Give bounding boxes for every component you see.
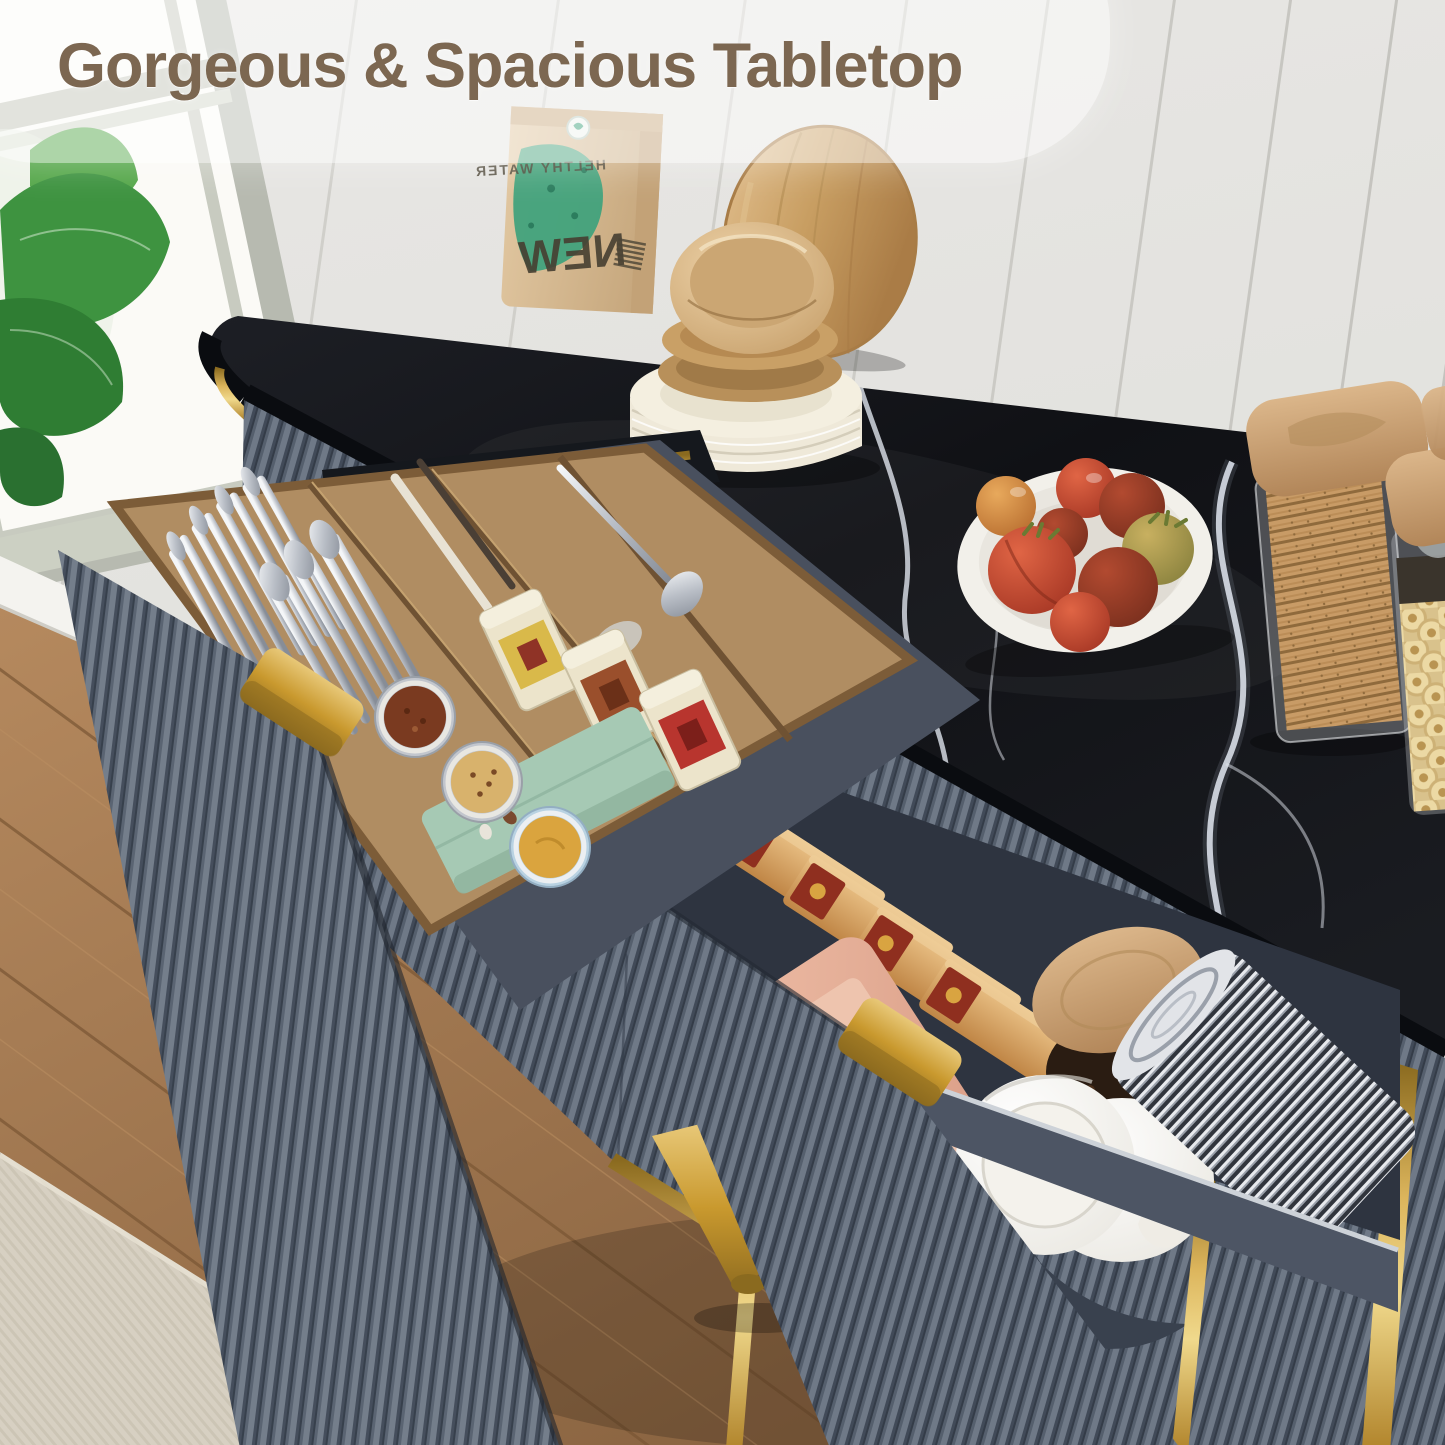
spice-tin <box>375 677 455 757</box>
kraft-bag-title: NEW <box>516 223 628 284</box>
page-title: Gorgeous & Spacious Tabletop <box>57 30 1157 102</box>
scene-canvas: HELTHY WATER NEW <box>0 0 1445 1445</box>
spice-tin <box>442 742 522 822</box>
spice-tin <box>510 807 590 887</box>
product-photo-scene: HELTHY WATER NEW <box>0 0 1445 1445</box>
